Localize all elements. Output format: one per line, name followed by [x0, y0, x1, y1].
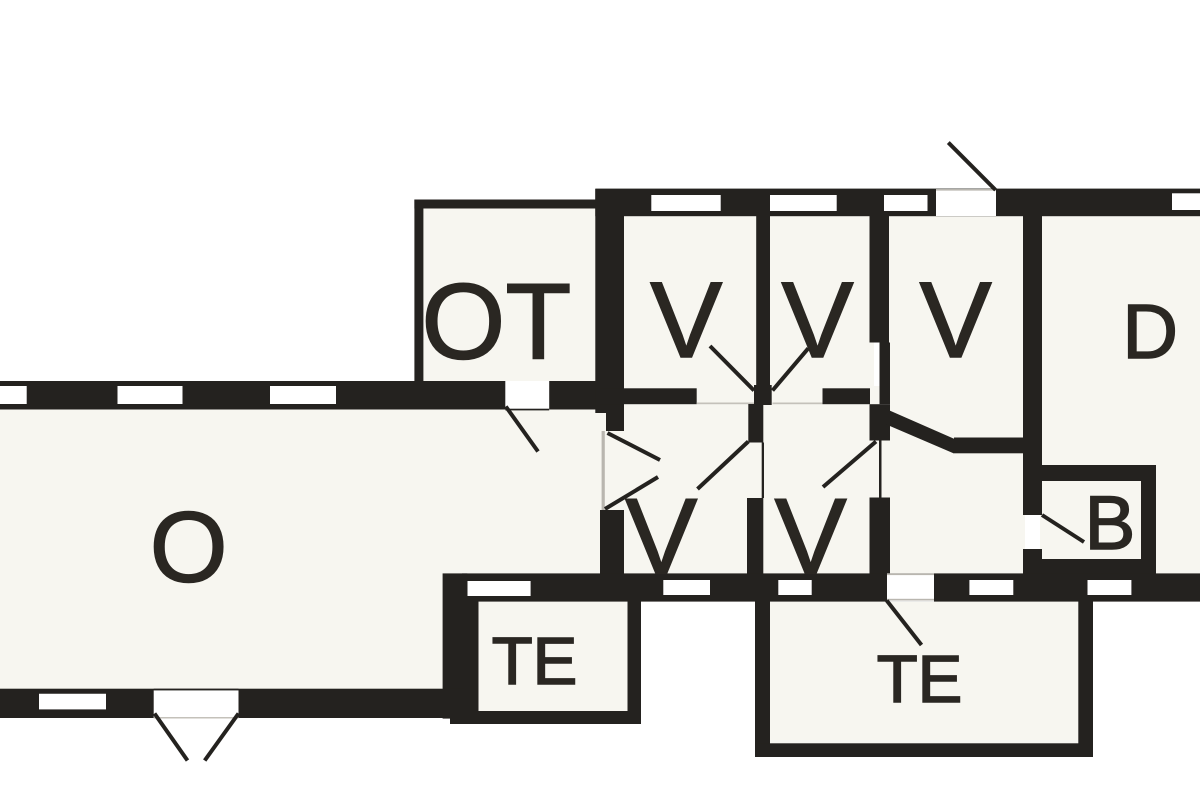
svg-text:V: V	[781, 259, 853, 380]
svg-text:D: D	[1122, 289, 1178, 375]
svg-text:V: V	[625, 476, 697, 597]
svg-text:TE: TE	[492, 624, 578, 699]
svg-text:TE: TE	[877, 642, 963, 717]
svg-text:V: V	[650, 259, 722, 380]
svg-text:V: V	[775, 476, 847, 597]
svg-text:B: B	[1085, 481, 1136, 566]
svg-text:O: O	[150, 492, 228, 604]
svg-text:OT: OT	[421, 261, 571, 382]
svg-text:V: V	[920, 259, 992, 380]
